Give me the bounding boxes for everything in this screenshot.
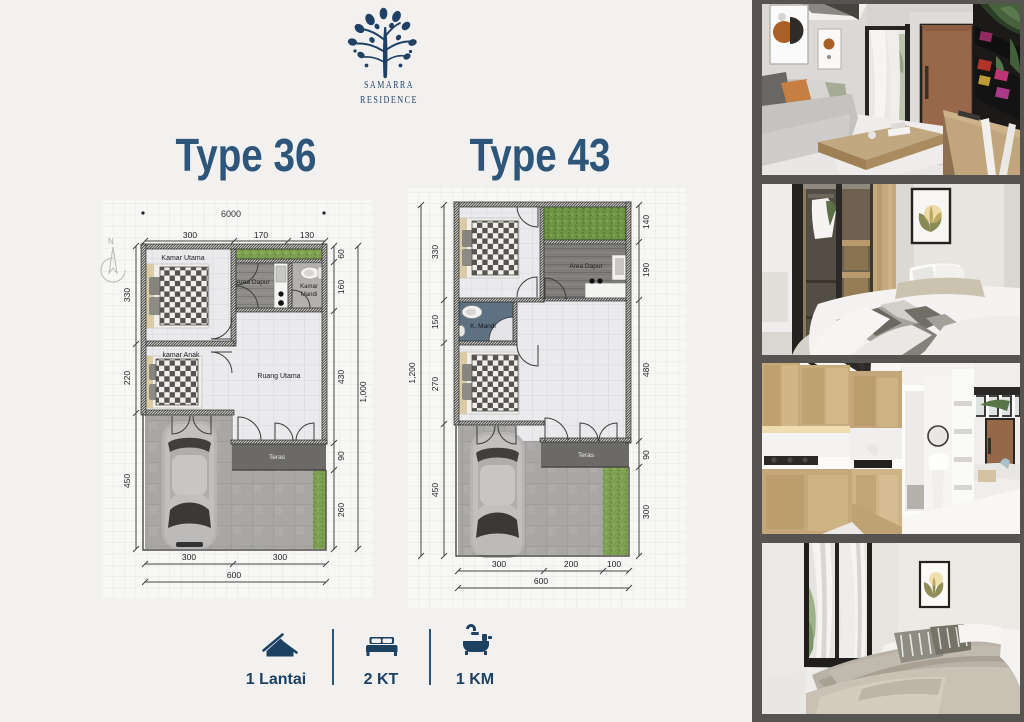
svg-text:160: 160 [336, 280, 346, 294]
svg-text:450: 450 [122, 474, 132, 488]
svg-text:150: 150 [430, 315, 440, 329]
svg-text:1,200: 1,200 [407, 362, 417, 384]
svg-text:Type 36: Type 36 [176, 129, 317, 181]
svg-text:480: 480 [641, 363, 651, 377]
svg-text:90: 90 [336, 451, 346, 461]
svg-text:220: 220 [122, 371, 132, 385]
svg-text:330: 330 [430, 245, 440, 259]
svg-text:430: 430 [336, 370, 346, 384]
svg-text:130: 130 [300, 230, 314, 240]
svg-text:N: N [108, 237, 114, 246]
svg-text:140: 140 [641, 215, 651, 229]
svg-text:1,000: 1,000 [358, 381, 368, 403]
svg-text:kamar Anak: kamar Anak [163, 352, 200, 359]
svg-text:1 KM: 1 KM [456, 671, 494, 688]
svg-text:Ruang Utama: Ruang Utama [257, 373, 300, 380]
svg-text:Area Dapur: Area Dapur [569, 263, 603, 270]
svg-text:Kamar: Kamar [300, 284, 318, 290]
svg-text:K. Mandi: K. Mandi [470, 323, 496, 330]
svg-text:600: 600 [534, 576, 548, 586]
svg-text:270: 270 [430, 377, 440, 391]
svg-text:100: 100 [607, 559, 621, 569]
svg-text:260: 260 [336, 503, 346, 517]
svg-text:Kamar Utama: Kamar Utama [161, 255, 204, 262]
svg-text:1 Lantai: 1 Lantai [246, 671, 306, 688]
svg-text:Area Dapur: Area Dapur [236, 279, 270, 286]
svg-text:170: 170 [254, 230, 268, 240]
svg-text:300: 300 [273, 552, 287, 562]
svg-text:Teras: Teras [269, 454, 286, 461]
svg-text:2 KT: 2 KT [364, 671, 399, 688]
svg-text:Teras: Teras [578, 452, 595, 459]
svg-text:Type 43: Type 43 [470, 129, 611, 181]
svg-text:300: 300 [641, 505, 651, 519]
svg-text:190: 190 [641, 263, 651, 277]
svg-text:330: 330 [122, 288, 132, 302]
svg-text:600: 600 [227, 570, 241, 580]
svg-text:6000: 6000 [221, 209, 241, 219]
svg-text:300: 300 [182, 552, 196, 562]
svg-text:Mandi: Mandi [301, 292, 317, 298]
svg-text:300: 300 [183, 230, 197, 240]
svg-text:60: 60 [336, 249, 346, 259]
svg-text:300: 300 [492, 559, 506, 569]
svg-text:90: 90 [641, 450, 651, 460]
svg-text:450: 450 [430, 483, 440, 497]
svg-text:RESIDENCE: RESIDENCE [360, 94, 418, 106]
svg-text:200: 200 [564, 559, 578, 569]
svg-text:SAMARRA: SAMARRA [364, 79, 414, 91]
